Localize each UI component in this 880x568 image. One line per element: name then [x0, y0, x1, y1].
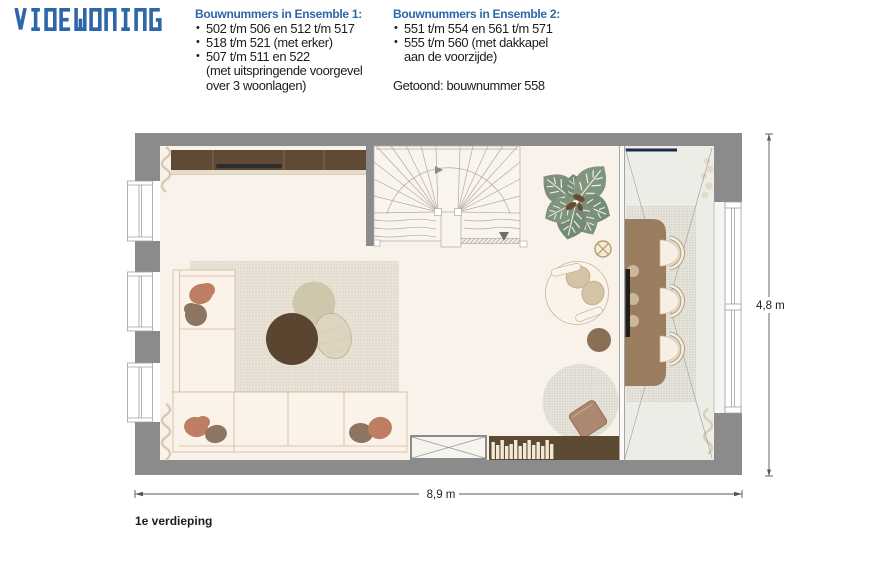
svg-text:4,8 m: 4,8 m: [756, 300, 785, 312]
svg-text:1e verdieping: 1e verdieping: [135, 514, 212, 528]
svg-text:8,9 m: 8,9 m: [427, 489, 456, 501]
